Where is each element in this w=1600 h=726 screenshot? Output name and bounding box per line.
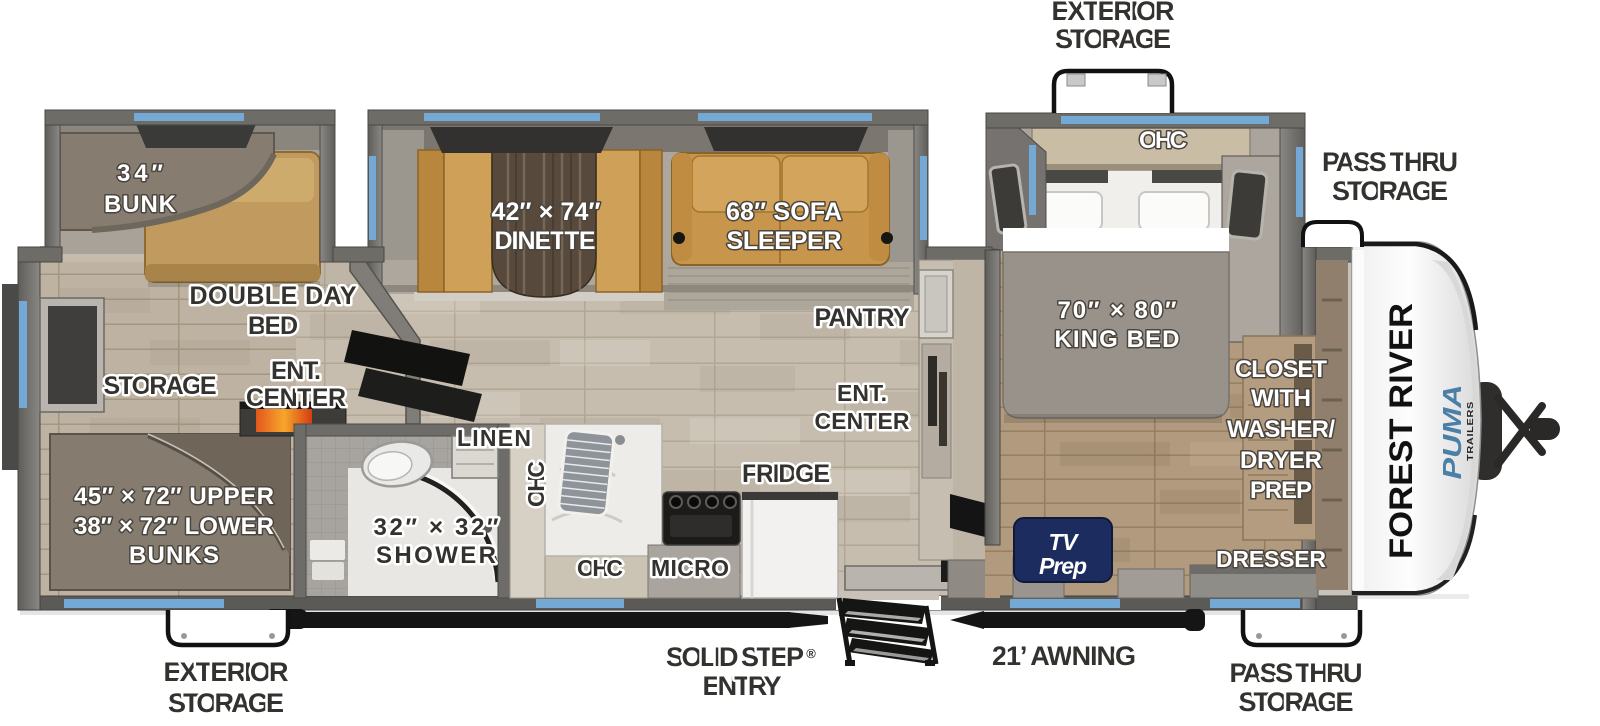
svg-text:FOREST RIVER: FOREST RIVER [1383,303,1419,559]
svg-text:45″ × 72″ UPPER: 45″ × 72″ UPPER [74,483,274,510]
svg-text:PANTRY: PANTRY [815,304,910,332]
svg-text:SOLID STEP: SOLID STEP [666,642,804,672]
svg-text:MICRO: MICRO [651,555,729,581]
svg-text:ENT.: ENT. [837,380,887,406]
svg-text:LINEN: LINEN [457,425,531,451]
svg-text:®: ® [806,646,816,661]
svg-text:STORAGE: STORAGE [1239,687,1354,717]
svg-text:BUNK: BUNK [104,191,177,218]
svg-text:68″ SOFA: 68″ SOFA [726,198,842,226]
svg-text:SLEEPER: SLEEPER [727,227,842,255]
svg-text:SHOWER: SHOWER [376,542,496,569]
svg-text:ENT.: ENT. [271,357,321,385]
svg-text:PREP: PREP [1250,477,1312,504]
svg-text:FRIDGE: FRIDGE [742,460,830,488]
svg-text:38″ × 72″ LOWER: 38″ × 72″ LOWER [74,513,274,540]
svg-text:PASS THRU: PASS THRU [1322,147,1458,177]
svg-text:70″ × 80″: 70″ × 80″ [1058,297,1178,324]
svg-text:OHC: OHC [1139,127,1187,154]
svg-text:DRESSER: DRESSER [1216,546,1326,572]
svg-text:DRYER: DRYER [1240,447,1322,474]
svg-text:BED: BED [248,312,298,340]
svg-text:STORAGE: STORAGE [168,688,284,718]
svg-text:TRAILERS: TRAILERS [1466,401,1475,461]
svg-text:STORAGE: STORAGE [104,372,217,400]
svg-text:WITH: WITH [1251,385,1311,412]
svg-text:OHC: OHC [577,555,623,581]
svg-text:EXTERIOR: EXTERIOR [164,657,289,687]
svg-text:32″ × 32″: 32″ × 32″ [374,514,500,541]
svg-text:CENTER: CENTER [246,384,346,412]
svg-text:PASS THRU: PASS THRU [1230,658,1363,688]
svg-text:ENTRY: ENTRY [703,671,782,701]
svg-text:34″: 34″ [117,160,164,187]
svg-text:21’ AWNING: 21’ AWNING [992,641,1136,671]
svg-text:OHC: OHC [523,461,549,507]
svg-text:CLOSET: CLOSET [1235,356,1327,383]
svg-text:STORAGE: STORAGE [1055,24,1171,54]
svg-text:CENTER: CENTER [815,408,910,434]
svg-text:TV: TV [1049,529,1080,555]
svg-text:STORAGE: STORAGE [1332,176,1448,206]
svg-text:EXTERIOR: EXTERIOR [1052,0,1175,26]
svg-text:BUNKS: BUNKS [129,542,219,569]
svg-text:PUMA: PUMA [1437,385,1467,480]
svg-text:42″ × 74″: 42″ × 74″ [492,198,601,226]
svg-text:DINETTE: DINETTE [495,227,596,255]
svg-text:WASHER/: WASHER/ [1227,416,1335,443]
svg-text:Prep: Prep [1039,553,1087,579]
svg-text:DOUBLE DAY: DOUBLE DAY [190,282,357,310]
svg-text:KING BED: KING BED [1055,326,1180,353]
